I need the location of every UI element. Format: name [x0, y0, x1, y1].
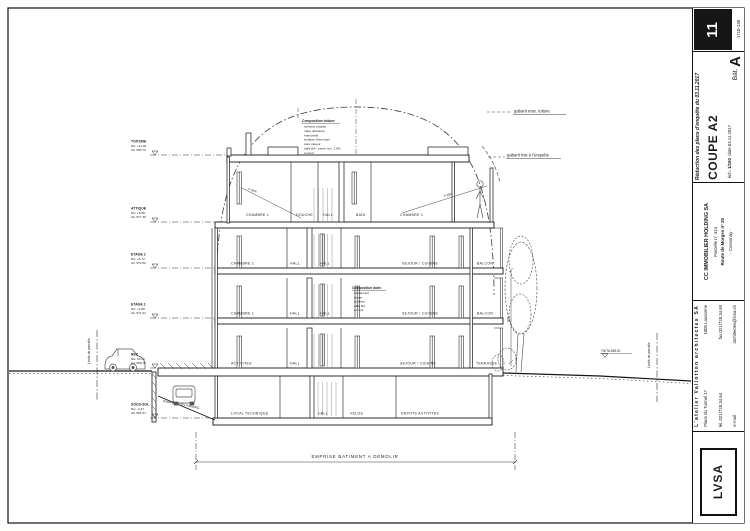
svg-text:Alt. 577.36: Alt. 577.36 [131, 215, 146, 219]
architect-tel: tél. 021/728.34.64 [718, 393, 723, 427]
sheet-border [8, 8, 744, 523]
level-label: ETAGE 1 Niv. +2.86 Alt. 571.64 [131, 302, 146, 315]
lvsa-logo: LVSA [711, 464, 726, 499]
architect-address: Place du Tunnel 17 [703, 390, 708, 427]
svg-text:SOUS-SOL: SOUS-SOL [131, 402, 150, 406]
sheet-number: 11 [704, 22, 723, 38]
comp-toiture-line: dalle BA - pente min. 1.5% [304, 147, 341, 151]
date-value: 03.11.2017 [727, 125, 732, 146]
architect-email-label: e-mail [732, 415, 737, 427]
svg-text:TOITURE: TOITURE [131, 139, 147, 143]
svg-text:REZ: REZ [131, 352, 139, 356]
sheet-number-box: 11 [694, 9, 732, 50]
architect-fax: fax 021/728.34.69 [718, 305, 723, 339]
comp-toiture-line: en brut [304, 151, 314, 155]
room-label: HALL [318, 412, 328, 416]
logo-cell: LVSA [693, 432, 744, 523]
architect-city: 1005 Lausanne [703, 305, 708, 335]
svg-text:Alt. 580.72: Alt. 580.72 [131, 148, 146, 152]
drawing-title: COUPE A2 [706, 115, 721, 180]
building-letter: A [727, 56, 744, 67]
architect-email: architectes@lvsa.ch [732, 305, 737, 344]
title-block-corner: 11 1710-138 [693, 8, 744, 52]
revision-note: Réduction des plans d'enquête du 03.11.2… [695, 73, 701, 180]
comp-dalle-title: Composition dalle: [352, 286, 382, 290]
svg-text:Alt. 574.50: Alt. 574.50 [131, 261, 146, 265]
building-label: Bât. A [727, 56, 746, 80]
date-label: date [727, 147, 732, 155]
room-label: HALL [323, 213, 333, 217]
emprise-label: EMPRISE BATIMENT A DEMOLIR [311, 454, 398, 459]
room-label: SEJOUR / CUISINE [400, 362, 436, 366]
project-number-cell: 1710-138 [733, 8, 744, 51]
gabarit-enquete-label: gabarit mis à l'enquête [507, 153, 550, 158]
tn-ta-label: TN/TA 568.00 [601, 349, 621, 353]
room-label: BALCON [477, 262, 493, 266]
gabarit-max-label: gabarit max. toiture [514, 109, 551, 114]
room-label: DOUCHE [296, 213, 313, 217]
comp-toiture-line: natte drainante [304, 129, 325, 133]
room-label: HALL [290, 262, 300, 266]
architect-phone-column: tél. 021/728.34.64 fax 021/728.34.69 [716, 303, 729, 429]
room-label: HALL [290, 362, 300, 366]
svg-text:Alt. 571.64: Alt. 571.64 [131, 311, 146, 315]
level-label: TOITURE Niv. +11.94 Alt. 580.72 [131, 139, 147, 152]
room-label: BAIN [356, 213, 366, 217]
section-drawing: gabarit max. toiture gabarit mis à l'enq… [0, 0, 750, 531]
room-label: DEPOTS ACTIVITES [401, 412, 439, 416]
facade-dimension-label: 920 [507, 316, 511, 322]
architect-address-column: Place du Tunnel 17 1005 Lausanne [701, 303, 714, 429]
comp-dalle-line: en brut [354, 308, 364, 312]
client-name: CC IMMOBILIER HOLDING SA [704, 203, 711, 280]
title-block: 11 1710-138 Réduction des plans d'enquêt… [692, 8, 744, 523]
comp-toiture-title: Composition toiture: [302, 119, 335, 123]
level-label: ATTIQUE Niv. +8.58 Alt. 577.36 [131, 206, 147, 219]
car-basement [173, 386, 195, 405]
svg-text:Alt. 566.31: Alt. 566.31 [131, 411, 146, 415]
room-label: VELOS [350, 412, 364, 416]
level-label: ETAGE 2 Niv. +5.72 Alt. 574.50 [131, 252, 146, 265]
parcel-limit-right-label: Limite de parcelle [647, 342, 651, 368]
architect-name: L'atelier Vallotton architectes SA [694, 305, 700, 427]
scale-date-column: Bât. A éch. 1/100 date 03.11.2017 [725, 54, 742, 180]
parcel-limit-left-label: Limite de parcelle [87, 338, 91, 364]
room-label: LOCAL TECHNIQUE [231, 412, 269, 416]
building-prefix: Bât. [732, 69, 739, 81]
room-label: HALL [320, 312, 330, 316]
room-label: CHAMBRE 1 [231, 312, 254, 316]
room-label: SEJOUR / CUISINE [402, 312, 438, 316]
room-label: HALL [290, 312, 300, 316]
comp-toiture-line: pare vapeur [304, 142, 321, 146]
comp-toiture-line: étanchéité [304, 133, 319, 137]
client-cell: CC IMMOBILIER HOLDING SA Parcelle n° 414… [693, 183, 744, 301]
scale-value: 1/100 [727, 158, 732, 169]
svg-text:ETAGE 1: ETAGE 1 [131, 302, 146, 306]
room-label: TERRASSE [476, 362, 498, 366]
comp-toiture-line: substrat végétal [304, 125, 326, 129]
room-label: SEJOUR / CUISINE [402, 262, 438, 266]
project-number: 1710-138 [736, 20, 741, 38]
room-label: CHAMBRE 1 [246, 213, 269, 217]
room-label: BALCON [477, 312, 493, 316]
client-street: Route de Morges n° 25 [720, 218, 726, 265]
room-label: ACTIVITES [231, 362, 252, 366]
lvsa-logo-box: LVSA [700, 448, 737, 516]
svg-text:Alt. 568.78: Alt. 568.78 [131, 361, 146, 365]
svg-text:ATTIQUE: ATTIQUE [131, 206, 147, 210]
room-label: HALL [320, 262, 330, 266]
architect-cell: L'atelier Vallotton architectes SA Place… [693, 301, 744, 432]
client-city: - Cossonay - [728, 229, 734, 254]
drawing-title-cell: Réduction des plans d'enquête du 03.11.2… [693, 52, 744, 183]
client-parcel: Parcelle n° 414 [713, 227, 719, 257]
room-label: CHAMBRE 1 [400, 213, 423, 217]
svg-text:ETAGE 2: ETAGE 2 [131, 252, 146, 256]
comp-toiture-line: isolation thermique [304, 138, 330, 142]
scale-label: éch. [727, 170, 732, 178]
architect-email-column: e-mail architectes@lvsa.ch [730, 303, 743, 429]
room-label: CHAMBRE 1 [231, 262, 254, 266]
scale-date: éch. 1/100 date 03.11.2017 [727, 125, 732, 178]
